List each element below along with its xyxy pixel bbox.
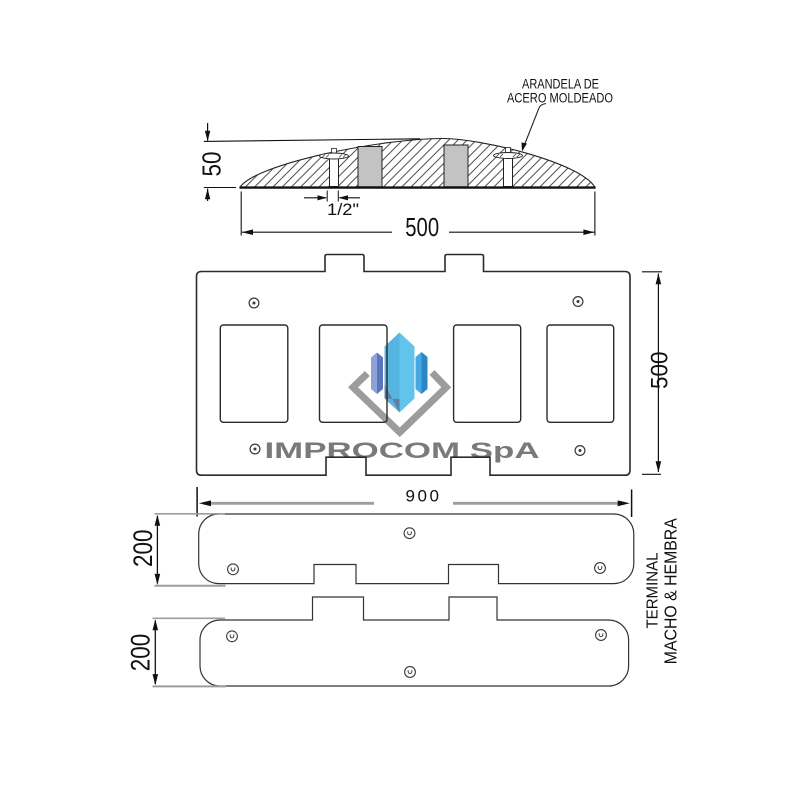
svg-text:1/2": 1/2" bbox=[327, 201, 359, 219]
svg-text:ARANDELA DE: ARANDELA DE bbox=[522, 77, 599, 92]
svg-text:200: 200 bbox=[128, 530, 158, 568]
svg-text:ACERO MOLDEADO: ACERO MOLDEADO bbox=[507, 91, 613, 106]
svg-text:200: 200 bbox=[126, 634, 156, 672]
svg-text:MACHO & HEMBRA: MACHO & HEMBRA bbox=[661, 518, 681, 664]
svg-text:500: 500 bbox=[405, 212, 439, 242]
svg-text:900: 900 bbox=[406, 486, 440, 505]
svg-text:50: 50 bbox=[197, 152, 227, 177]
svg-text:TERMINAL: TERMINAL bbox=[644, 552, 661, 628]
svg-text:IMPROCOM SpA: IMPROCOM SpA bbox=[265, 438, 540, 463]
svg-text:500: 500 bbox=[646, 352, 673, 390]
